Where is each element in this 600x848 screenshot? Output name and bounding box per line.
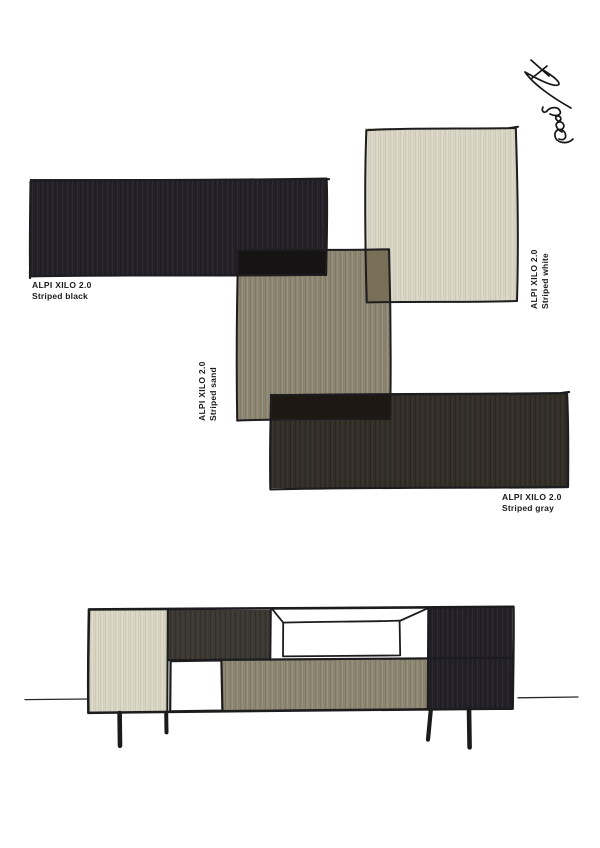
cabinet-legs (120, 709, 470, 748)
cabinet-panel-white (90, 610, 167, 711)
product-name: ALPI XILO 2.0 (529, 249, 540, 309)
finish-name: Striped white (540, 249, 551, 309)
finish-name: Striped gray (502, 503, 562, 514)
moodboard-page: ALPI XILO 2.0 Striped black ALPI XILO 2.… (0, 0, 600, 848)
sideboard-sketch (25, 607, 578, 748)
shelf-diagonal-right (400, 608, 428, 621)
shelf-inner-box (283, 621, 400, 657)
leg-rear-right (428, 710, 431, 740)
product-name: ALPI XILO 2.0 (32, 280, 92, 291)
overlap-gray-on-sand (270, 394, 390, 420)
product-name: ALPI XILO 2.0 (502, 492, 562, 503)
divider-vertical-mid (270, 609, 271, 660)
label-striped-black: ALPI XILO 2.0 Striped black (32, 280, 92, 302)
ground-line-right (518, 697, 578, 698)
designer-signature-icon (525, 60, 573, 143)
product-name: ALPI XILO 2.0 (197, 361, 208, 421)
swatch-fills (30, 128, 568, 488)
finish-name: Striped sand (208, 361, 219, 421)
leg-front-right (469, 709, 470, 748)
shelf-diagonal-left (273, 610, 284, 623)
cabinet-open-cube (171, 661, 222, 711)
moodboard-graphic (0, 0, 600, 848)
finish-name: Striped black (32, 291, 92, 302)
label-striped-white: ALPI XILO 2.0 Striped white (529, 249, 551, 309)
cabinet-panel-sand (222, 659, 428, 710)
cabinet-panel-gray (167, 610, 271, 660)
overlap-sand-on-black (237, 250, 327, 276)
overlap-white-on-sand (365, 250, 390, 302)
label-striped-gray: ALPI XILO 2.0 Striped gray (502, 492, 562, 514)
label-striped-sand: ALPI XILO 2.0 Striped sand (197, 361, 219, 421)
ground-line-left (25, 699, 88, 700)
